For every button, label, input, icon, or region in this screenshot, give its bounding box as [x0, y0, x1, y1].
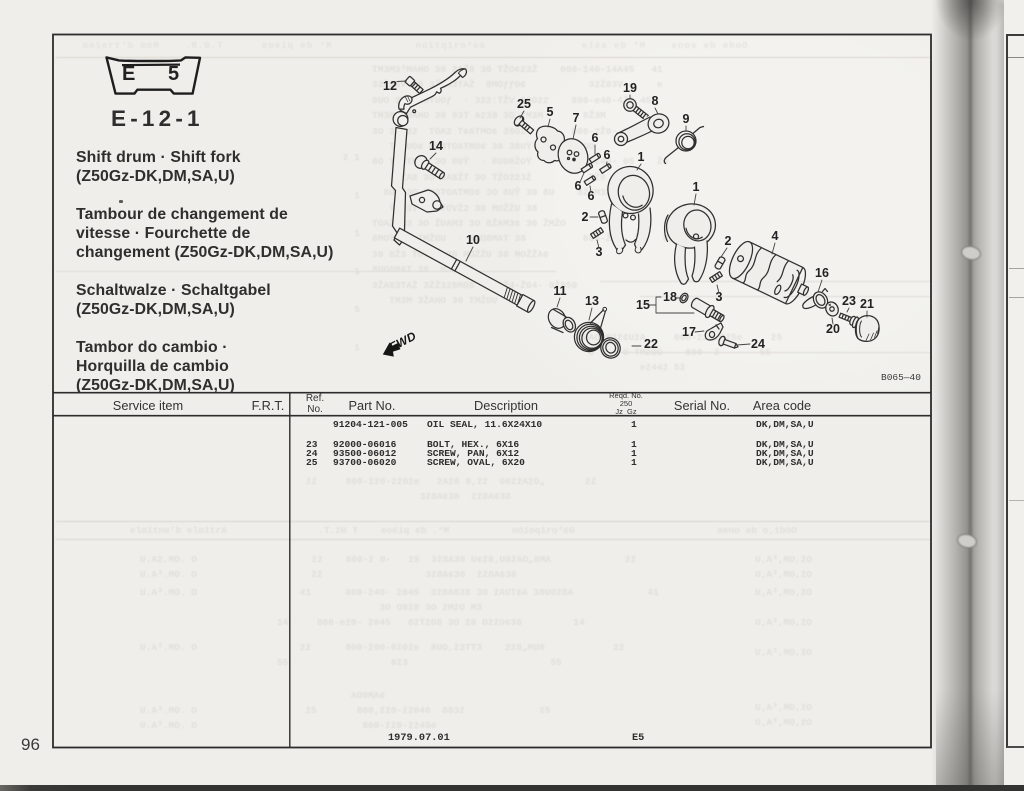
svg-text:18: 18 — [663, 290, 677, 304]
svg-text:17: 17 — [682, 325, 696, 339]
svg-text:4: 4 — [772, 229, 779, 243]
svg-text:13: 13 — [585, 294, 599, 308]
svg-text:23: 23 — [842, 294, 856, 308]
svg-text:B065—40: B065—40 — [881, 372, 921, 383]
svg-text:24: 24 — [751, 337, 765, 351]
svg-text:9: 9 — [683, 112, 690, 126]
svg-text:14: 14 — [429, 139, 443, 153]
svg-text:12: 12 — [383, 79, 397, 93]
svg-text:21: 21 — [860, 297, 874, 311]
svg-text:1: 1 — [638, 150, 645, 164]
svg-text:6: 6 — [604, 148, 611, 162]
svg-text:2: 2 — [582, 210, 589, 224]
svg-text:8: 8 — [652, 94, 659, 108]
svg-text:5: 5 — [547, 105, 554, 119]
svg-text:FWD: FWD — [387, 329, 419, 354]
svg-text:1: 1 — [693, 180, 700, 194]
svg-text:19: 19 — [623, 81, 637, 95]
svg-text:15: 15 — [636, 298, 650, 312]
svg-text:16: 16 — [815, 266, 829, 280]
svg-text:25: 25 — [517, 97, 531, 111]
svg-text:7: 7 — [573, 111, 580, 125]
svg-text:11: 11 — [553, 284, 566, 298]
svg-text:10: 10 — [466, 233, 480, 247]
svg-text:22: 22 — [644, 337, 658, 351]
svg-text:6: 6 — [592, 131, 599, 145]
svg-text:2: 2 — [725, 234, 732, 248]
